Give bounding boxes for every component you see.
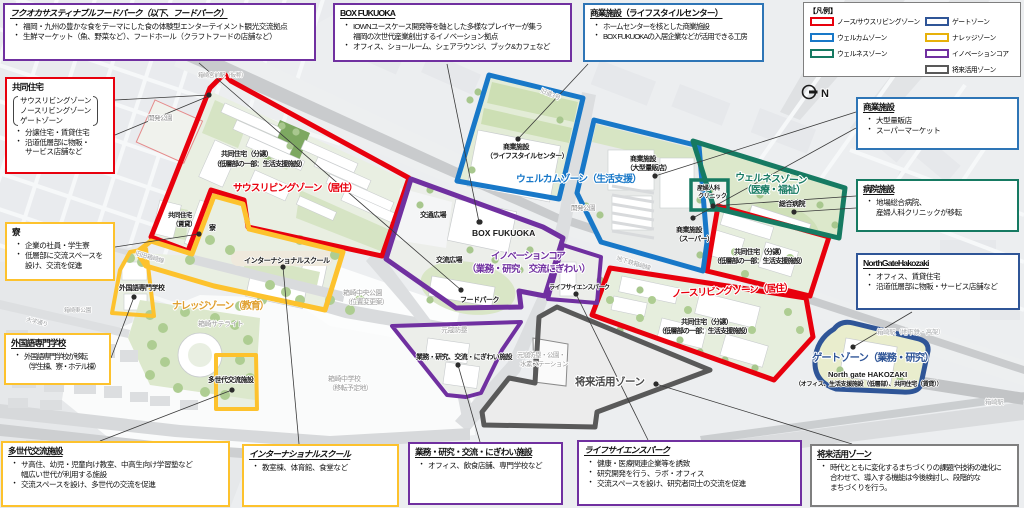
svg-text:箱崎宮前駅（仮称）: 箱崎宮前駅（仮称） bbox=[198, 71, 247, 79]
svg-text:箱崎駅: 箱崎駅 bbox=[985, 397, 1004, 406]
svg-text:ウェルカムゾーン（生活支援）: ウェルカムゾーン（生活支援） bbox=[516, 172, 641, 185]
svg-text:箱崎サテライト: 箱崎サテライト bbox=[198, 319, 244, 328]
svg-text:箱崎駅（地下鉄・高架）: 箱崎駅（地下鉄・高架） bbox=[877, 327, 944, 336]
svg-text:ライフサイエンスパーク: ライフサイエンスパーク bbox=[549, 282, 610, 291]
svg-text:イノベーションコア: イノベーションコア bbox=[491, 251, 566, 262]
svg-text:水素ステーション: 水素ステーション bbox=[520, 359, 568, 368]
svg-text:North gate HAKOZAKI: North gate HAKOZAKI bbox=[828, 370, 907, 379]
svg-text:共同住宅（分譲）: 共同住宅（分譲） bbox=[681, 317, 732, 326]
svg-text:（医療・福祉）: （医療・福祉） bbox=[742, 183, 805, 196]
svg-text:箱崎中学校: 箱崎中学校 bbox=[328, 374, 361, 383]
svg-text:ナレッジゾーン（教育）: ナレッジゾーン（教育） bbox=[172, 299, 268, 312]
svg-text:（ライフスタイルセンター）: （ライフスタイルセンター） bbox=[486, 151, 568, 160]
svg-text:開発公園: 開発公園 bbox=[571, 203, 595, 212]
svg-text:産婦人科: 産婦人科 bbox=[697, 184, 721, 192]
svg-text:商業施設: 商業施設 bbox=[630, 154, 657, 163]
svg-text:（オフィス、生活支援施設（低層部）、共同住宅（賃貸））: （オフィス、生活支援施設（低層部）、共同住宅（賃貸）） bbox=[795, 380, 942, 388]
svg-text:将来活用ゾーン: 将来活用ゾーン bbox=[575, 375, 644, 388]
svg-text:箱崎東公園: 箱崎東公園 bbox=[64, 306, 92, 314]
svg-text:ゲートゾーン（業務・研究）: ゲートゾーン（業務・研究） bbox=[812, 351, 934, 364]
svg-text:外国語専門学校: 外国語専門学校 bbox=[119, 283, 166, 292]
svg-text:（スーパー）: （スーパー） bbox=[675, 234, 713, 243]
svg-text:（低層部の一部：生活支援施設）: （低層部の一部：生活支援施設） bbox=[658, 326, 751, 335]
svg-text:フードパーク: フードパーク bbox=[460, 295, 499, 304]
svg-text:交流広場: 交流広場 bbox=[436, 255, 462, 264]
svg-text:総合病院: 総合病院 bbox=[779, 199, 805, 208]
svg-text:多世代交流施設: 多世代交流施設 bbox=[208, 375, 255, 384]
svg-text:サウスリビングゾーン（居住）: サウスリビングゾーン（居住） bbox=[233, 181, 357, 194]
svg-text:（業務・研究 交流にぎわい）: （業務・研究 交流にぎわい） bbox=[467, 263, 590, 275]
svg-text:箱崎中央公園: 箱崎中央公園 bbox=[343, 288, 382, 297]
svg-text:インターナショナルスクール: インターナショナルスクール bbox=[244, 256, 331, 265]
svg-text:交通広場: 交通広場 bbox=[420, 210, 446, 219]
svg-text:（低層部の一部：生活支援施設）: （低層部の一部：生活支援施設） bbox=[713, 256, 806, 265]
svg-text:寮: 寮 bbox=[208, 223, 217, 232]
svg-text:（移転予定地）: （移転予定地） bbox=[328, 383, 372, 392]
svg-text:共同住宅（分譲）: 共同住宅（分譲） bbox=[734, 247, 785, 256]
svg-text:BOX FUKUOKA: BOX FUKUOKA bbox=[472, 228, 535, 238]
svg-text:（位置変更案）: （位置変更案） bbox=[344, 297, 388, 306]
svg-text:共同住宅（分譲）: 共同住宅（分譲） bbox=[221, 149, 272, 158]
svg-text:（低層部の一部：生活支援施設）: （低層部の一部：生活支援施設） bbox=[213, 159, 306, 168]
svg-text:元寇防塁・公園・: 元寇防塁・公園・ bbox=[517, 350, 565, 359]
svg-text:共同住宅: 共同住宅 bbox=[168, 210, 193, 219]
svg-text:商業施設: 商業施設 bbox=[676, 225, 703, 234]
svg-text:（大型量販店）: （大型量販店） bbox=[626, 163, 671, 172]
svg-text:開発公園: 開発公園 bbox=[148, 113, 172, 122]
svg-text:（賃貸）: （賃貸） bbox=[172, 219, 196, 228]
svg-text:クリニック: クリニック bbox=[698, 192, 727, 200]
svg-text:商業施設: 商業施設 bbox=[503, 142, 530, 151]
svg-text:業務・研究、交流・にぎわい施設: 業務・研究、交流・にぎわい施設 bbox=[415, 352, 514, 361]
svg-text:N: N bbox=[821, 88, 829, 100]
